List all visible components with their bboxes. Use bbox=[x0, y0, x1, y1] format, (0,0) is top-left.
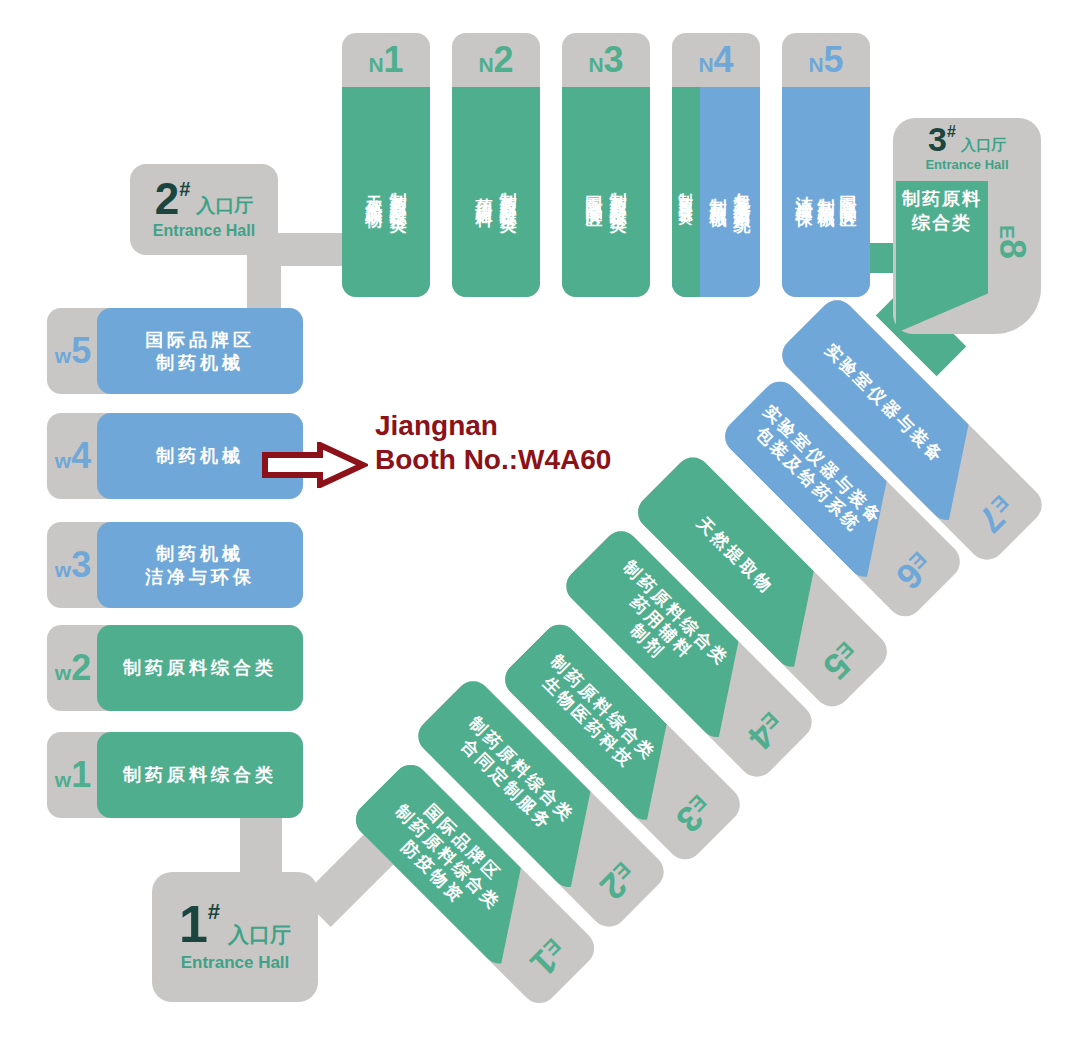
entrance-2-hash: # bbox=[179, 179, 190, 199]
hall-w3-letter: w bbox=[55, 558, 71, 581]
hall-n2-letter: N bbox=[478, 53, 493, 76]
hall-w3-category: 洁净与环保 bbox=[145, 568, 255, 586]
hall-w1: w1 制药原料综合类 bbox=[47, 732, 303, 818]
hall-w3-number: 3 bbox=[71, 544, 91, 585]
hall-w4-category: 制药机械 bbox=[156, 447, 244, 465]
entrance-hall-3: 3#入口厅 Entrance Hall bbox=[893, 124, 1041, 172]
hall-w5-body: 国际品牌区 制药机械 bbox=[97, 308, 303, 394]
hall-n1-category: 制药原料综合类 bbox=[390, 178, 407, 206]
hall-w3-header: w3 bbox=[47, 522, 99, 608]
hall-e8-letter: E bbox=[996, 225, 1019, 239]
hall-e5-category: 天然提取物 bbox=[694, 514, 777, 597]
annotation-company: Jiangnan bbox=[375, 410, 498, 442]
hall-w3-category: 制药机械 bbox=[156, 545, 244, 563]
corridor-entrance2-n1 bbox=[272, 233, 346, 266]
hall-n2-category: 制药原料综合类 bbox=[500, 178, 517, 206]
hall-w2-number: 2 bbox=[71, 647, 91, 688]
hall-n2-category: 药用辅料 bbox=[476, 184, 493, 200]
hall-w1-header: w1 bbox=[47, 732, 99, 818]
hall-w5-letter: w bbox=[55, 344, 71, 367]
hall-n4-green-strip: 制药原料综合类 bbox=[672, 87, 700, 297]
hall-n4-category: 包装及给药系统 bbox=[734, 178, 751, 206]
hall-n1-number: 1 bbox=[384, 39, 404, 80]
hall-w5-header: w5 bbox=[47, 308, 99, 394]
hall-n1-letter: N bbox=[368, 53, 383, 76]
hall-n4-header: N4 bbox=[672, 33, 760, 87]
hall-n4-number: 4 bbox=[714, 39, 734, 80]
hall-w4-letter: w bbox=[55, 449, 71, 472]
hall-n5-category: 制药机械 bbox=[818, 184, 835, 200]
hall-n5-body: 国际品牌区 制药机械 洁净与环保 bbox=[782, 87, 870, 297]
hall-n4-body: 制药原料综合类 包装及给药系统 制药机械 bbox=[672, 87, 760, 297]
hall-e8-category: 综合类 bbox=[912, 214, 972, 232]
hall-e8-category: 制药原料 bbox=[902, 190, 982, 208]
hall-e8-header: E8 bbox=[986, 196, 1038, 288]
entrance-1-number: 1 bbox=[179, 901, 208, 948]
hall-w3-body: 制药机械 洁净与环保 bbox=[97, 522, 303, 608]
hall-w1-body: 制药原料综合类 bbox=[97, 732, 303, 818]
entrance-hall-1: 1#入口厅 Entrance Hall bbox=[152, 872, 318, 1002]
entrance-3-number: 3 bbox=[928, 124, 947, 155]
hall-n2-header: N2 bbox=[452, 33, 540, 87]
hall-n5-category: 国际品牌区 bbox=[840, 182, 857, 202]
hall-n3: N3 制药原料综合类 国际品牌区 bbox=[562, 33, 650, 297]
entrance-1-title: 1#入口厅 bbox=[179, 901, 291, 949]
hall-n5: N5 国际品牌区 制药机械 洁净与环保 bbox=[782, 33, 870, 297]
hall-n3-letter: N bbox=[588, 53, 603, 76]
hall-n5-number: 5 bbox=[824, 39, 844, 80]
hall-w4-header: w4 bbox=[47, 413, 99, 499]
hall-w1-category: 制药原料综合类 bbox=[123, 766, 277, 784]
entrance-3-title: 3#入口厅 bbox=[928, 124, 1006, 155]
hall-w2: w2 制药原料综合类 bbox=[47, 625, 303, 711]
hall-n4-category: 制药机械 bbox=[710, 184, 727, 200]
corridor-w1-entrance1 bbox=[240, 812, 282, 876]
hall-w5-number: 5 bbox=[71, 330, 91, 371]
hall-n1-header: N1 bbox=[342, 33, 430, 87]
hall-n5-letter: N bbox=[808, 53, 823, 76]
hall-n1-category: 天然提取物 bbox=[366, 182, 383, 202]
entrance-2-label-cn: 入口厅 bbox=[196, 193, 253, 219]
entrance-2-title: 2#入口厅 bbox=[155, 179, 254, 219]
hall-w2-header: w2 bbox=[47, 625, 99, 711]
hall-w4-number: 4 bbox=[71, 435, 91, 476]
hall-w2-category: 制药原料综合类 bbox=[123, 659, 277, 677]
entrance-3-label-en: Entrance Hall bbox=[925, 157, 1008, 172]
hall-n3-header: N3 bbox=[562, 33, 650, 87]
hall-n2-body: 制药原料综合类 药用辅料 bbox=[452, 87, 540, 297]
entrance-3-label-cn: 入口厅 bbox=[961, 136, 1006, 155]
hall-n3-category: 国际品牌区 bbox=[586, 182, 603, 202]
annotation-booth-number: Booth No.:W4A60 bbox=[375, 444, 611, 476]
hall-e8-number: 8 bbox=[992, 239, 1033, 259]
hall-n4: N4 制药原料综合类 包装及给药系统 制药机械 bbox=[672, 33, 760, 297]
hall-n3-number: 3 bbox=[604, 39, 624, 80]
hall-n4-category: 制药原料综合类 bbox=[679, 182, 693, 203]
hall-n3-category: 制药原料综合类 bbox=[610, 178, 627, 206]
hall-w1-letter: w bbox=[55, 768, 71, 791]
entrance-1-label-en: Entrance Hall bbox=[181, 953, 290, 973]
hall-e8-text: 制药原料 综合类 bbox=[896, 190, 988, 232]
hall-w2-body: 制药原料综合类 bbox=[97, 625, 303, 711]
hall-w3: w3 制药机械 洁净与环保 bbox=[47, 522, 303, 608]
hall-n4-letter: N bbox=[698, 53, 713, 76]
hall-w2-letter: w bbox=[55, 661, 71, 684]
entrance-2-label-en: Entrance Hall bbox=[153, 222, 255, 240]
hall-n5-header: N5 bbox=[782, 33, 870, 87]
entrance-1-label-cn: 入口厅 bbox=[228, 921, 291, 949]
hall-w5-category: 制药机械 bbox=[156, 354, 244, 372]
hall-w5: w5 国际品牌区 制药机械 bbox=[47, 308, 303, 394]
hall-n2-number: 2 bbox=[494, 39, 514, 80]
hall-w5-category: 国际品牌区 bbox=[145, 331, 255, 349]
hall-n2: N2 制药原料综合类 药用辅料 bbox=[452, 33, 540, 297]
corridor-entrance2-w5 bbox=[247, 250, 281, 312]
entrance-hall-2: 2#入口厅 Entrance Hall bbox=[130, 164, 278, 255]
hall-n3-body: 制药原料综合类 国际品牌区 bbox=[562, 87, 650, 297]
hall-n1-body: 制药原料综合类 天然提取物 bbox=[342, 87, 430, 297]
exhibition-floor-map: 2#入口厅 Entrance Hall N1 制药原料综合类 天然提取物 N2 … bbox=[0, 0, 1080, 1042]
entrance-3-hash: # bbox=[947, 124, 956, 140]
entrance-1-hash: # bbox=[208, 901, 220, 923]
entrance-2-number: 2 bbox=[155, 179, 179, 219]
hall-n1: N1 制药原料综合类 天然提取物 bbox=[342, 33, 430, 297]
annotation-arrow-icon bbox=[262, 442, 368, 488]
hall-w1-number: 1 bbox=[71, 754, 91, 795]
hall-n5-category: 洁净与环保 bbox=[796, 182, 813, 202]
